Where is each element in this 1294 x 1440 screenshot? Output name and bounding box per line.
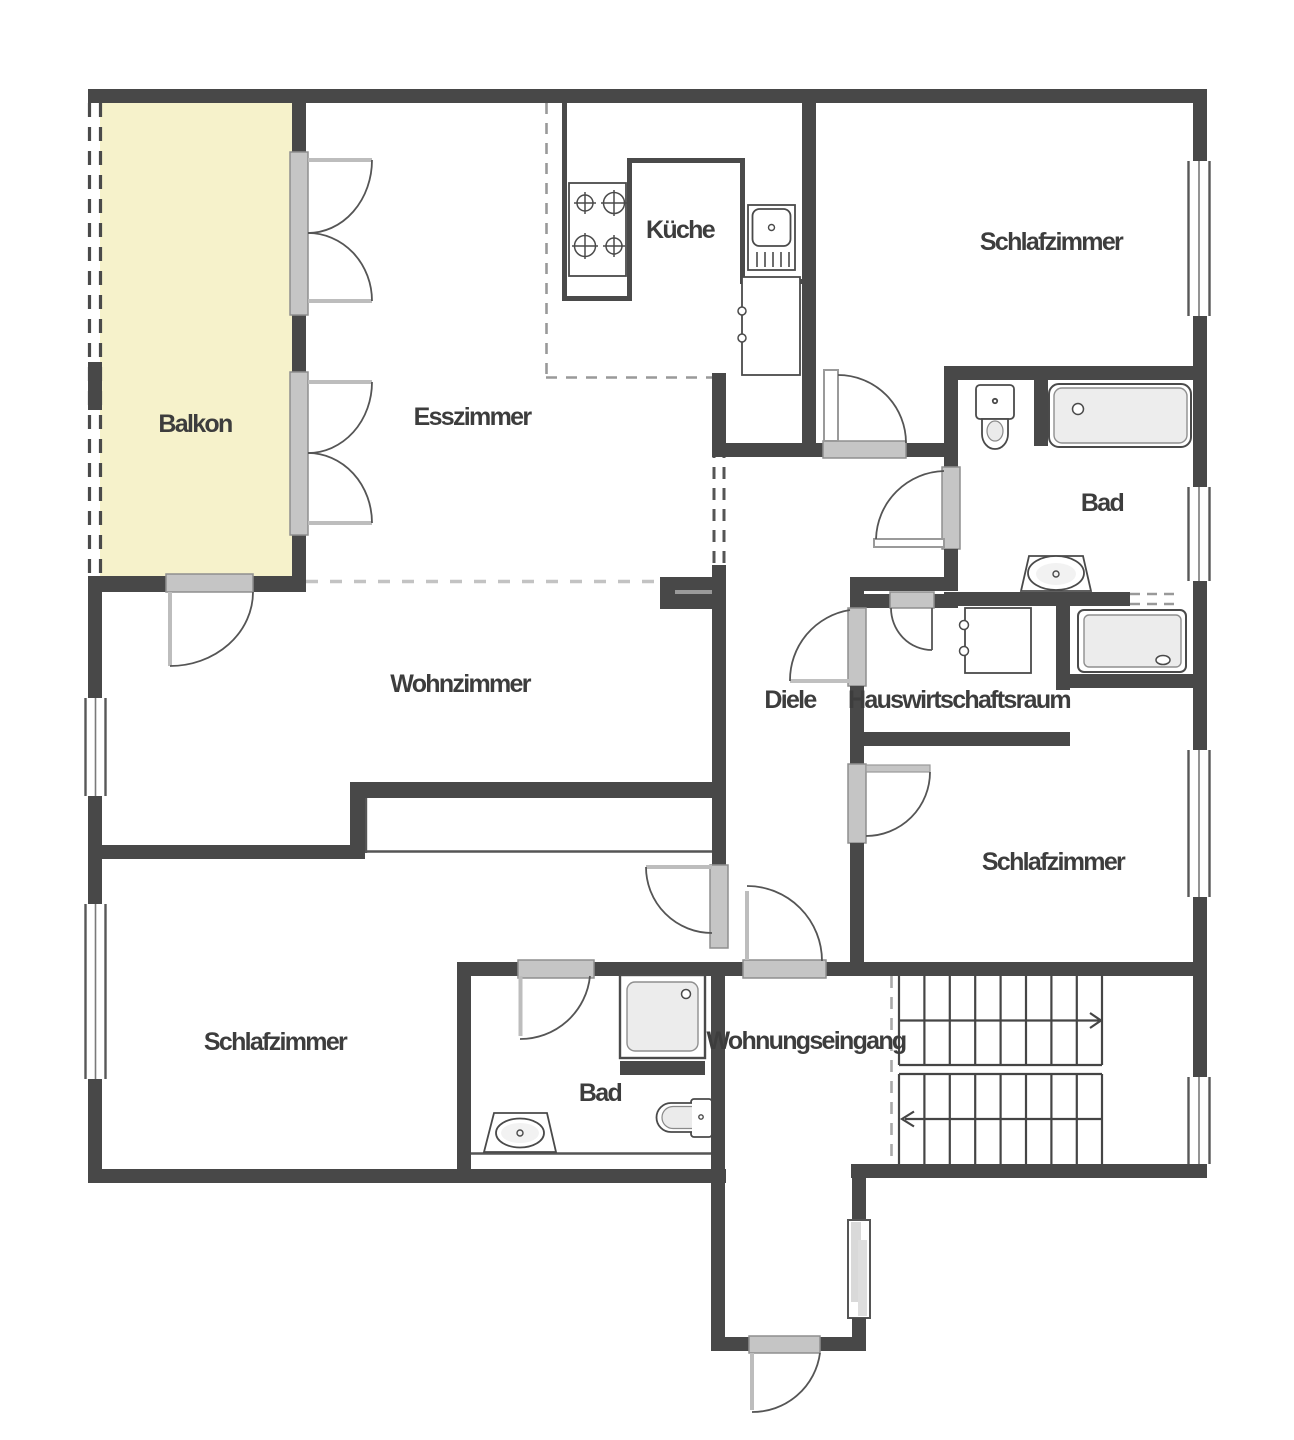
- svg-text:Wohnzimmer: Wohnzimmer: [390, 670, 531, 698]
- svg-text:Schlafzimmer: Schlafzimmer: [204, 1028, 348, 1056]
- svg-text:Schlafzimmer: Schlafzimmer: [982, 848, 1126, 876]
- svg-text:Esszimmer: Esszimmer: [414, 403, 533, 431]
- svg-text:Diele: Diele: [764, 686, 817, 714]
- svg-text:Bad: Bad: [579, 1079, 622, 1107]
- svg-text:Bad: Bad: [1081, 489, 1124, 517]
- svg-text:Hauswirtschaftsraum: Hauswirtschaftsraum: [848, 686, 1070, 714]
- svg-text:Schlafzimmer: Schlafzimmer: [980, 228, 1124, 256]
- svg-text:Balkon: Balkon: [158, 410, 232, 438]
- svg-text:Küche: Küche: [646, 216, 716, 244]
- svg-text:Wohnungseingang: Wohnungseingang: [706, 1027, 905, 1055]
